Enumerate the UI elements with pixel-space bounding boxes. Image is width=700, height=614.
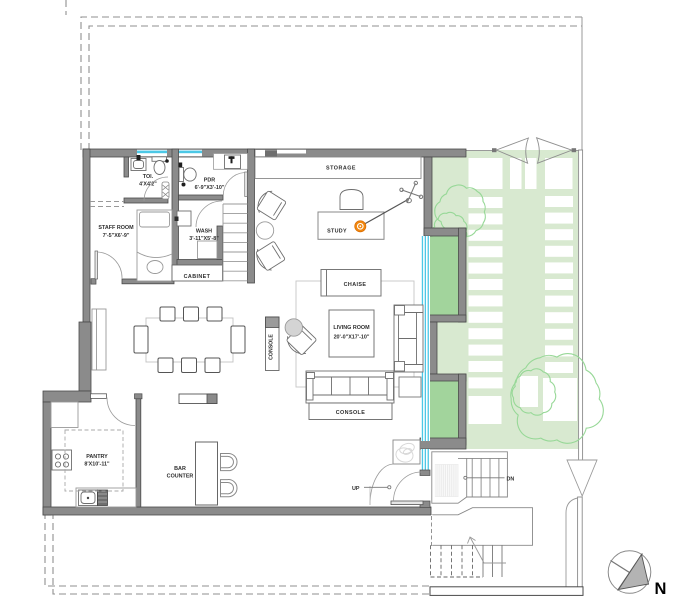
svg-text:N: N: [655, 580, 667, 598]
svg-text:CONSOLE: CONSOLE: [336, 410, 365, 416]
svg-text:LIVING ROOM: LIVING ROOM: [333, 325, 370, 331]
svg-text:8'X10'-11": 8'X10'-11": [84, 462, 110, 468]
svg-text:CONSOLE: CONSOLE: [269, 334, 275, 360]
svg-text:STUDY: STUDY: [327, 229, 347, 235]
svg-text:STORAGE: STORAGE: [326, 166, 356, 172]
svg-text:BAR: BAR: [174, 466, 186, 472]
svg-text:6'-9"X3'-10": 6'-9"X3'-10": [195, 185, 225, 191]
svg-text:7'-5"X6'-9": 7'-5"X6'-9": [103, 233, 130, 239]
svg-text:WASH: WASH: [196, 229, 212, 235]
svg-text:UP: UP: [352, 486, 360, 492]
svg-text:STAFF ROOM: STAFF ROOM: [98, 225, 134, 231]
svg-text:PDR: PDR: [204, 178, 215, 184]
svg-text:CHAISE: CHAISE: [344, 282, 367, 288]
svg-text:CABINET: CABINET: [184, 274, 211, 280]
svg-text:TOI.: TOI.: [143, 174, 154, 180]
svg-text:PANTRY: PANTRY: [86, 454, 108, 460]
svg-text:4'X4'2": 4'X4'2": [139, 182, 157, 188]
svg-text:COUNTER: COUNTER: [167, 474, 194, 480]
svg-text:20'-0"X17'-10": 20'-0"X17'-10": [334, 335, 370, 341]
svg-text:DN: DN: [507, 477, 515, 483]
